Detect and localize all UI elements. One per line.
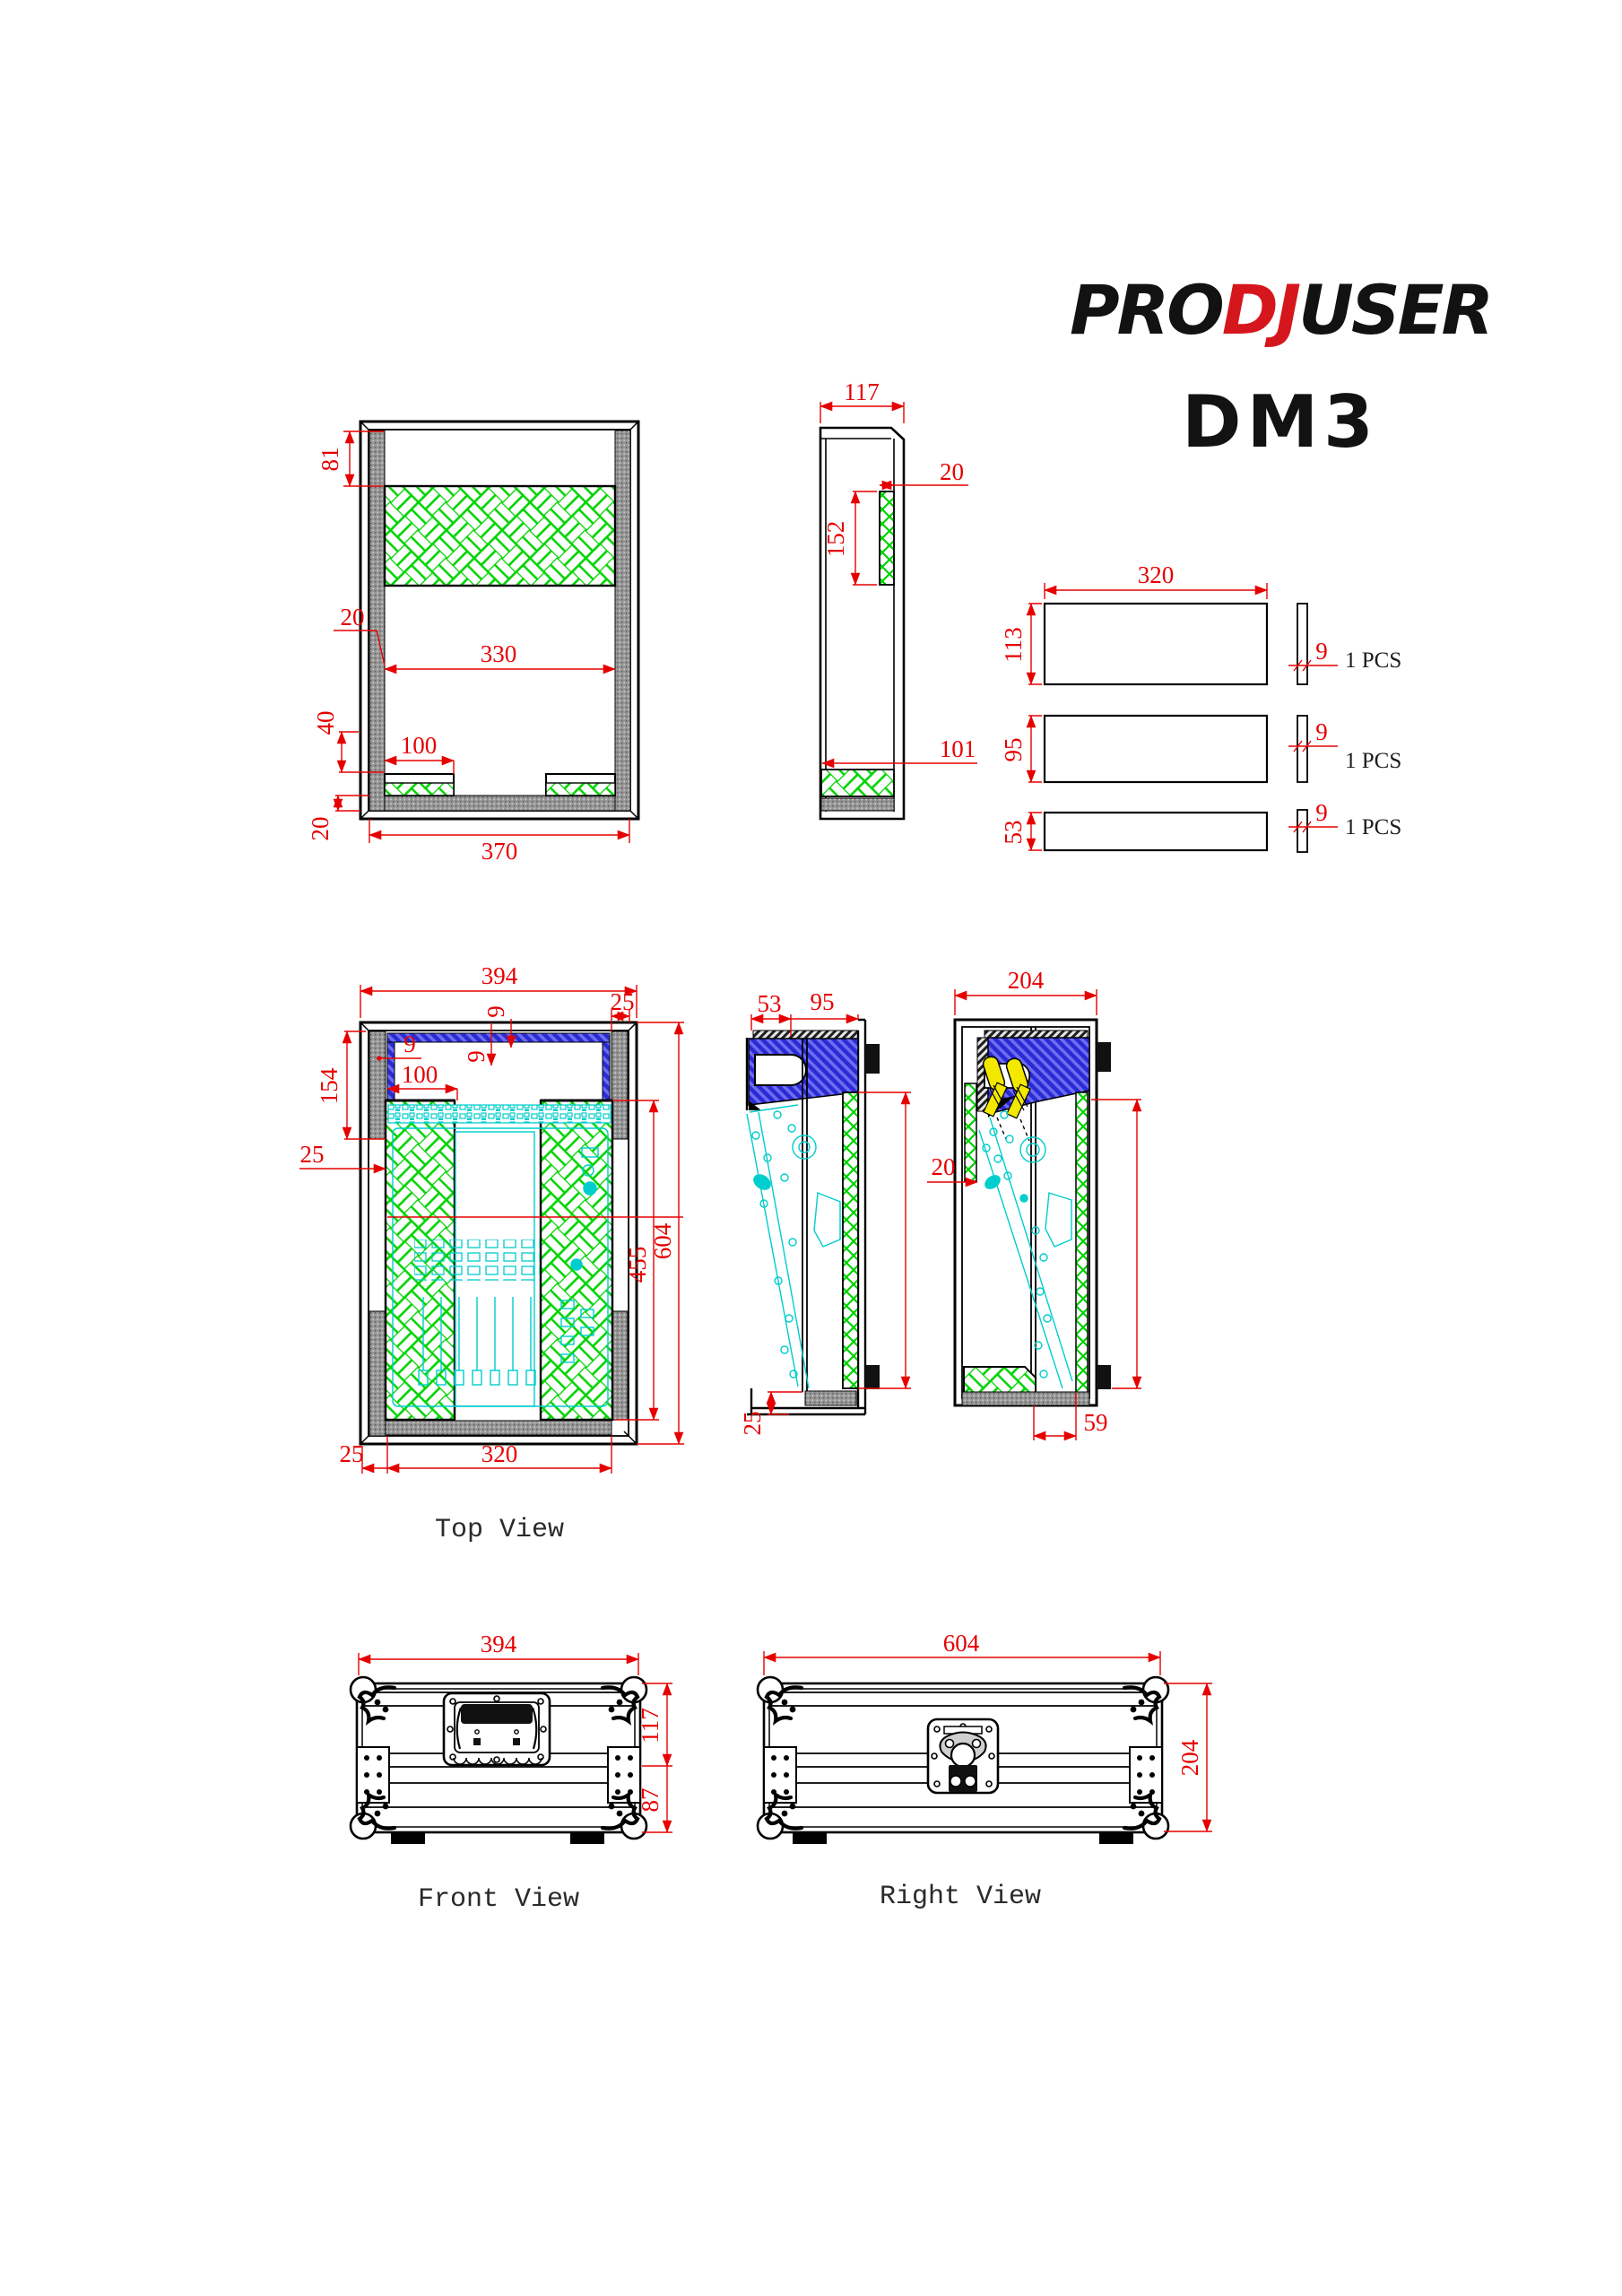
- view-side-plan: 117 20 152 101: [820, 378, 977, 819]
- view-front: 394 117 87 Front View: [351, 1631, 672, 1915]
- lid-clip-bottom: [865, 1365, 880, 1389]
- view-side-middle: 204 20 59: [927, 967, 1141, 1440]
- foot-left: [391, 1832, 425, 1844]
- dim-a-330: 330: [481, 640, 517, 667]
- dim-a-370: 370: [481, 838, 518, 865]
- butterfly-latch: [928, 1719, 998, 1793]
- dim-f-59: 59: [1084, 1409, 1108, 1436]
- dim-c-9b: 9: [1315, 718, 1328, 745]
- foam-block-top: [385, 486, 615, 586]
- panel-53-qty: 1 PCS: [1345, 815, 1401, 839]
- dim-c-113: 113: [1000, 627, 1027, 663]
- title-right-view: Right View: [880, 1882, 1041, 1912]
- foam-strip: [880, 491, 894, 585]
- dim-c-320: 320: [1138, 561, 1175, 588]
- panel-113-qty: 1 PCS: [1345, 648, 1401, 673]
- view-right: 604 204 Right View: [758, 1630, 1212, 1912]
- dim-a-20-wall: 20: [341, 604, 365, 631]
- dim-h-204: 204: [1176, 1739, 1203, 1776]
- dim-c-9a: 9: [1315, 638, 1328, 665]
- view-top: 394 25 9 9 9 100 154 25 604 455: [299, 962, 684, 1545]
- dim-d-25-bottomleft: 25: [340, 1440, 364, 1467]
- dim-a-20-bottom: 20: [307, 817, 334, 841]
- view-panels: 320 113 95 53 9 9 9 1 PCS 1 PCS 1 PCS: [1000, 561, 1401, 852]
- panel-113-edge: [1297, 604, 1307, 684]
- logo-wordmark: PRODJUSER: [1070, 270, 1491, 350]
- latch-recess: [755, 1055, 806, 1085]
- dim-e-25: 25: [739, 1412, 766, 1436]
- dim-d-25-topright: 25: [611, 988, 635, 1015]
- dim-d-320: 320: [481, 1440, 518, 1467]
- dim-c-9c: 9: [1315, 799, 1328, 826]
- dim-d-9a: 9: [482, 1005, 509, 1018]
- dim-d-25-left: 25: [300, 1141, 325, 1168]
- dim-b-20: 20: [940, 458, 964, 485]
- foam-wall-right: [615, 430, 630, 811]
- dim-d-455: 455: [624, 1247, 651, 1283]
- blueprint-page: PRODJUSER DM3 81 20 330 40: [0, 0, 1622, 2296]
- blueprint-canvas: PRODJUSER DM3 81 20 330 40: [0, 0, 1622, 2296]
- dim-g-394: 394: [481, 1631, 517, 1657]
- panel-113: [1045, 604, 1267, 684]
- dim-b-101: 101: [940, 735, 976, 762]
- panel-95: [1045, 716, 1267, 782]
- foam-block-small-left: [385, 774, 454, 796]
- foot-right: [570, 1832, 604, 1844]
- dim-g-87: 87: [637, 1788, 664, 1813]
- dim-a-100: 100: [401, 732, 438, 759]
- dim-b-117: 117: [844, 378, 880, 405]
- title-top-view: Top View: [435, 1515, 564, 1545]
- dim-a-81: 81: [317, 448, 343, 472]
- dim-f-20: 20: [932, 1153, 956, 1180]
- view-lid-plan: 81 20 330 40 100 20 370: [307, 422, 638, 865]
- dim-f-204: 204: [1008, 967, 1045, 994]
- dim-h-604: 604: [943, 1630, 980, 1657]
- dim-c-95: 95: [1000, 738, 1027, 762]
- foam-wall-bottom: [385, 796, 615, 811]
- foot-left: [793, 1832, 827, 1844]
- title-front-view: Front View: [418, 1884, 579, 1915]
- foam-wall-bottom: [821, 798, 894, 811]
- dim-d-9b: 9: [463, 1050, 490, 1063]
- dim-d-394: 394: [481, 962, 518, 989]
- panel-53-edge: [1297, 810, 1307, 852]
- dim-d-100: 100: [402, 1061, 438, 1088]
- panel-95-edge: [1297, 716, 1307, 782]
- foam-block-bottom: [964, 1367, 1036, 1393]
- panel-53: [1045, 813, 1267, 850]
- foam-wall-left: [369, 430, 385, 811]
- lid-clip-top: [865, 1044, 880, 1074]
- model-name: DM3: [1182, 380, 1379, 464]
- mixer-profile: [747, 1105, 840, 1388]
- foam-strip-left: [965, 1083, 976, 1181]
- handle: [444, 1693, 550, 1765]
- foot-right: [1099, 1832, 1133, 1844]
- view-section-middle: 53 95 25: [739, 988, 911, 1436]
- foam-block-small-right: [546, 774, 615, 796]
- foam-strip-right: [1076, 1092, 1088, 1393]
- dim-d-154: 154: [316, 1067, 343, 1104]
- foam-block-bottom: [821, 770, 894, 796]
- panel-95-qty: 1 PCS: [1345, 749, 1401, 773]
- lid-foam-top: [387, 1033, 610, 1042]
- dim-g-117: 117: [637, 1708, 664, 1744]
- dim-c-53: 53: [1000, 821, 1027, 845]
- dim-e-53: 53: [758, 990, 782, 1017]
- foam-strip-back: [843, 1092, 858, 1388]
- dim-d-9c: 9: [403, 1031, 416, 1057]
- brand-logo: PRODJUSER DM3: [1070, 270, 1491, 464]
- dim-a-40: 40: [312, 711, 339, 735]
- dim-e-95: 95: [811, 988, 835, 1015]
- dim-b-152: 152: [822, 521, 849, 558]
